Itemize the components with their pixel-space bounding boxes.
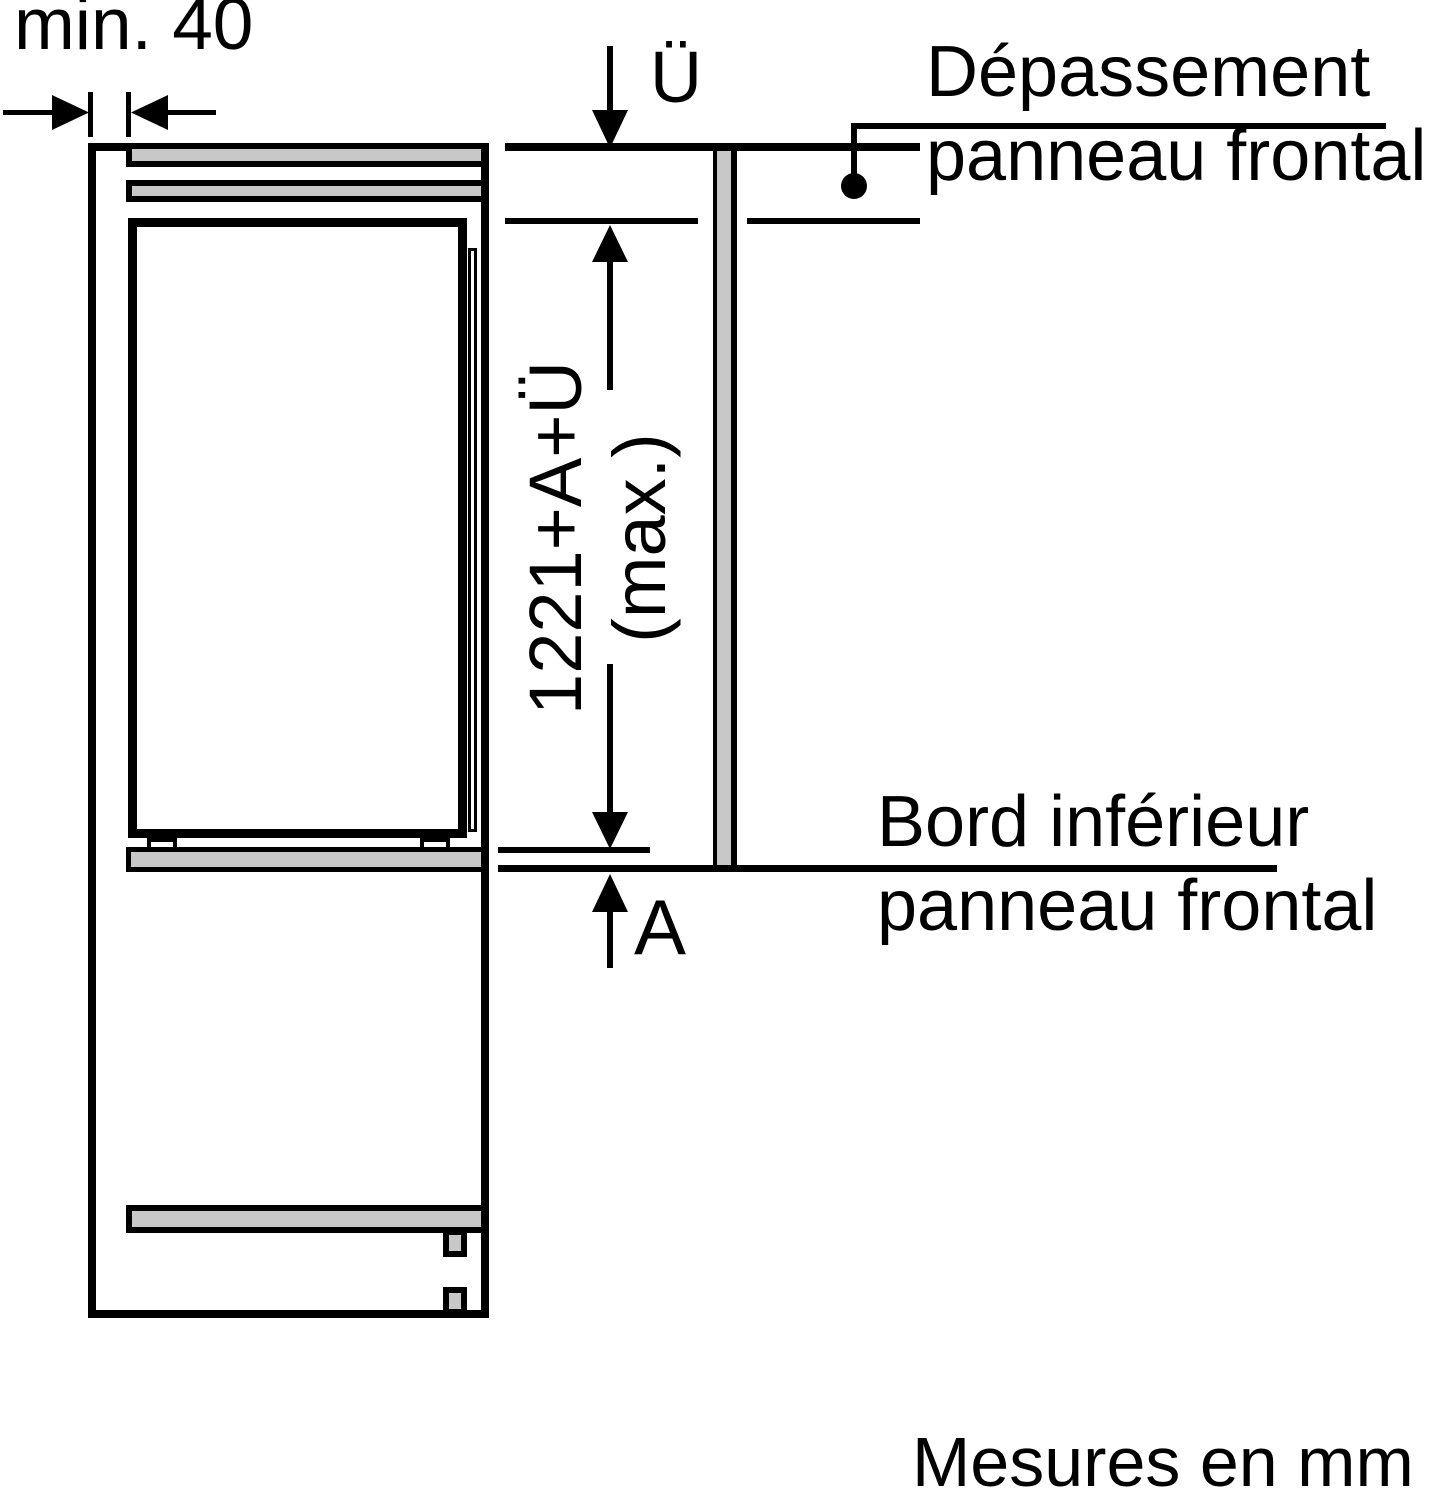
panel-top-reference-line	[505, 143, 920, 151]
fixing-block-lower	[443, 1287, 467, 1315]
installation-diagram: min. 40 Ü Dépassement panneau frontal 12…	[0, 0, 1453, 1500]
bottom-edge-label-line1: Bord inférieur	[877, 780, 1377, 864]
panel-max-length-line1: 1221+A+Ü	[514, 358, 598, 718]
gap-a-symbol-label: A	[634, 888, 686, 966]
units-note-label: Mesures en mm	[912, 1427, 1414, 1497]
min-gap-label: min. 40	[14, 0, 253, 61]
panel-max-length-label: 1221+A+Ü (max.)	[514, 358, 682, 718]
overhang-dim-line	[607, 46, 613, 112]
appliance-door-edge	[468, 248, 477, 832]
plinth-shelf	[126, 1205, 481, 1233]
front-panel-bar	[713, 149, 737, 866]
appliance-body	[128, 218, 467, 838]
gap-a-arrowhead-up	[592, 874, 628, 912]
overhang-panel-label-line2: panneau frontal	[926, 114, 1426, 198]
top-rail-upper	[126, 143, 481, 167]
overhang-symbol-label: Ü	[650, 42, 702, 114]
overhang-panel-label: Dépassement panneau frontal	[926, 30, 1426, 198]
bottom-rail	[126, 847, 481, 872]
min40-extension-tick-right	[126, 92, 131, 137]
leader-line-vertical	[851, 123, 857, 181]
bottom-edge-label: Bord inférieur panneau frontal	[877, 780, 1377, 948]
cabinet-left-wall	[88, 143, 96, 1318]
cabinet-bottom-line	[88, 1310, 489, 1318]
panel-max-arrowhead-up	[592, 225, 628, 262]
door-top-reference-line-right	[747, 218, 920, 224]
min40-extension-tick-left	[88, 92, 93, 137]
min40-arrow-line-right	[165, 110, 216, 115]
door-top-reference-line-left	[505, 218, 698, 224]
overhang-panel-label-line1: Dépassement	[926, 30, 1426, 114]
cabinet-right-wall	[481, 143, 489, 1318]
gap-a-dim-line	[607, 908, 613, 968]
bottom-edge-label-line2: panneau frontal	[877, 864, 1377, 948]
fixing-block-upper	[443, 1229, 467, 1257]
panel-max-length-line2: (max.)	[598, 358, 682, 718]
top-rail-lower	[126, 180, 481, 202]
min40-arrow-line-left	[3, 110, 55, 115]
door-bottom-short-line	[498, 847, 650, 853]
min40-arrowhead-left	[131, 95, 168, 130]
min40-arrowhead-right	[52, 95, 89, 130]
